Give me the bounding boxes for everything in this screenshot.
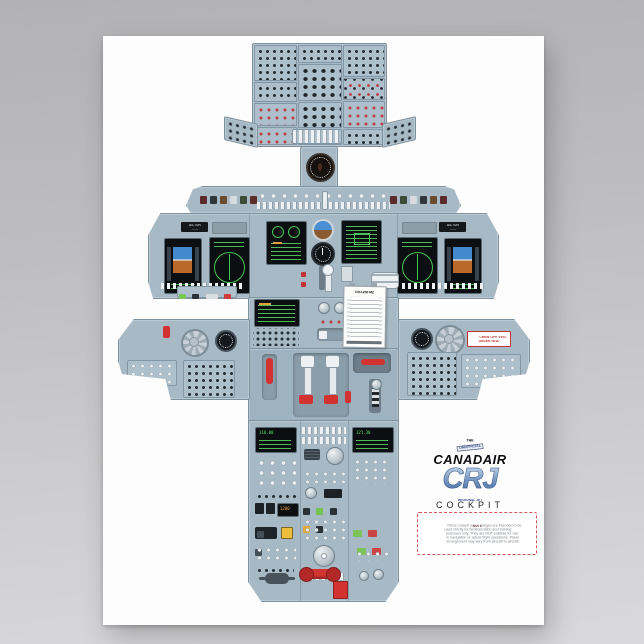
- green-lamp: [353, 530, 362, 537]
- data-placard-right: [402, 222, 437, 234]
- fms-cdu-screen: [254, 299, 300, 327]
- brand-model-sub: REGIONAL JET: [458, 499, 482, 502]
- lamp: [230, 196, 237, 204]
- brand-model: CRJ: [421, 466, 519, 492]
- overhead-subpanel: [298, 64, 342, 100]
- overhead-subpanel: [298, 102, 342, 128]
- toggle-row: [254, 565, 294, 573]
- dark-lamp: [330, 508, 337, 515]
- flap-lever: [361, 359, 385, 365]
- note-line: arrangement may vary from aircraft to ai…: [446, 540, 519, 544]
- guarded-switch: [301, 272, 306, 277]
- altimeter-needle: [322, 248, 323, 255]
- note-body: These cockpit panel images are intended …: [422, 522, 532, 542]
- indicator-window: [257, 531, 264, 538]
- thrust-lever-shaft: [304, 365, 312, 395]
- overhead-subpanel: [343, 129, 385, 145]
- cdu-text-rows: [258, 303, 295, 322]
- right-bezel-button-strip: [402, 283, 486, 289]
- source-select-knob-cluster: [302, 517, 346, 541]
- warning-lamp: [440, 196, 447, 204]
- standby-altimeter: [311, 242, 335, 266]
- first-officer-clock: [411, 328, 433, 350]
- transponder-display: 1200: [277, 503, 299, 517]
- panel-seam: [348, 421, 349, 601]
- com1-frequency: 118.00: [259, 431, 273, 435]
- reversion-lamp-panel: [177, 286, 237, 298]
- speed-tape: [447, 247, 451, 281]
- aircraft-id-text: A/C S/N: [447, 224, 459, 227]
- alt-tape: [475, 247, 479, 281]
- clock-face: [219, 334, 233, 348]
- checklist-card: CRJ-200 M2: [342, 286, 386, 349]
- guarded-red-switch: [163, 326, 170, 338]
- wiper-switch-recess: [317, 328, 345, 341]
- radio-tuning-display-left: 118.00: [255, 427, 297, 453]
- clock-face: [415, 332, 429, 346]
- lighting-knob: [373, 569, 384, 580]
- audio-knob-row: [302, 469, 346, 483]
- heading-line: [229, 254, 230, 280]
- small-knob-row: [354, 549, 390, 561]
- checklist-lines: [347, 297, 383, 338]
- flap-indicator-gauge: [341, 266, 353, 282]
- volume-knob-large: [326, 447, 344, 465]
- trim-wheel-center: [321, 553, 327, 559]
- white-button: [319, 331, 327, 339]
- green-lamp: [179, 294, 186, 299]
- red-guard-switch: [345, 391, 351, 403]
- amber-readout: [273, 242, 282, 244]
- aft-pedestal: 118.00 1200: [248, 420, 399, 602]
- com2-frequency: 121.30: [356, 431, 370, 435]
- aircraft-id-text: A/C S/N: [189, 224, 201, 227]
- dark-lamp: [192, 294, 199, 299]
- checklist-title: CRJ-200 M2: [356, 291, 375, 295]
- cdu-title-row: [259, 303, 271, 305]
- lamp: [420, 196, 427, 204]
- transponder-code: 1200: [280, 507, 290, 511]
- note-box: NOTE These cockpit panel images are inte…: [417, 512, 537, 555]
- throttle-quadrant: [248, 348, 399, 422]
- thrust-lever-grip: [325, 355, 340, 368]
- lamp: [410, 196, 417, 204]
- radio-rows: [356, 437, 388, 449]
- overhead-subpanel: [254, 103, 297, 126]
- thrust-lever-grip: [300, 355, 315, 368]
- speaker-grille: [304, 449, 320, 460]
- status-lamp: [400, 196, 407, 204]
- glareshield-panel: [186, 186, 461, 214]
- reverser-lever: [299, 395, 313, 404]
- life-vest-text: CREW LIFE VEST: [479, 336, 507, 339]
- main-instrument-panel: A/C S/N —— A/C S/N ——: [148, 213, 499, 299]
- radio-rows: [259, 437, 291, 449]
- nd-heading-row: [402, 241, 432, 247]
- atc-key: [255, 503, 264, 514]
- label-strip: [206, 294, 218, 299]
- overhead-right-wing: [382, 116, 416, 148]
- lighting-control-panel: [127, 360, 177, 386]
- selector-knob: [305, 487, 317, 499]
- overhead-subpanel: [254, 82, 297, 102]
- reverser-lever: [324, 395, 338, 404]
- warning-lamp: [200, 196, 207, 204]
- alt-tape: [195, 247, 199, 281]
- heading-line: [417, 254, 418, 280]
- poster: A/C S/N —— A/C S/N ——: [103, 36, 544, 625]
- brand-the: THE: [466, 439, 473, 443]
- rudder-trim-aircraft-symbol: [265, 573, 289, 584]
- atc-key: [266, 503, 275, 514]
- status-lamp: [240, 196, 247, 204]
- life-vest-placard: CREW LIFE VEST UNDER SEAT: [467, 331, 511, 347]
- standby-compass-pod: [300, 146, 338, 188]
- eicas-primary-display: [266, 221, 307, 265]
- radio-knob-grid: [352, 457, 392, 485]
- speedbrake-lever: [266, 358, 273, 384]
- compass-center: [318, 163, 322, 171]
- door-status-lamps: [352, 525, 394, 539]
- aircraft-id-placard-left: A/C S/N ——: [181, 222, 208, 232]
- guarded-switch: [301, 282, 306, 287]
- standby-attitude-indicator: [312, 219, 334, 241]
- speed-tape: [167, 247, 171, 281]
- dark-double-key: [324, 489, 342, 498]
- overhead-subpanel: [254, 45, 297, 81]
- overhead-audio-strip: [292, 129, 342, 144]
- engine-dial: [272, 226, 284, 238]
- knob-cap: [444, 334, 454, 344]
- pitch-wheel: [322, 191, 328, 210]
- fire-extinguisher-handle: [333, 581, 348, 599]
- trim-knob-row: [254, 545, 296, 561]
- engine-dial: [288, 226, 300, 238]
- thrust-lever-shaft: [329, 365, 337, 395]
- trim-switch-panel: [183, 360, 235, 398]
- overhead-subpanel: [343, 45, 385, 77]
- knob-panel: [461, 354, 521, 388]
- altimeter-scale: [315, 246, 331, 262]
- caution-lamp: [430, 196, 437, 204]
- lighting-knob: [359, 571, 369, 581]
- amber-button: [281, 527, 293, 539]
- overhead-subpanel: [343, 78, 385, 100]
- parking-brake-disc: [299, 567, 314, 582]
- system-synoptic-box: [354, 233, 370, 245]
- dark-lamp: [303, 508, 310, 515]
- captain-clock: [215, 330, 237, 352]
- red-lamp: [224, 294, 231, 299]
- aircraft-id-placard-right: A/C S/N ——: [439, 222, 466, 232]
- eicas-system-display: [341, 220, 382, 264]
- status-lamp-row: [302, 503, 346, 513]
- overhead-right-column: [343, 45, 385, 145]
- attitude-indicator: [453, 247, 472, 273]
- checklist-footer: [347, 341, 382, 345]
- data-placard-left: [212, 222, 247, 234]
- attitude-indicator: [173, 247, 192, 273]
- display-control-knob: [318, 302, 330, 314]
- glareshield-right-annunciators: [389, 195, 448, 205]
- nd-heading-row: [214, 241, 244, 247]
- product-photo-background: A/C S/N —— A/C S/N ——: [0, 0, 644, 644]
- switch-row: [254, 491, 296, 499]
- audio-select-row: [302, 427, 346, 434]
- caution-lamp: [220, 196, 227, 204]
- audio-select-row: [302, 437, 346, 444]
- overhead-subpanel: [254, 127, 297, 145]
- lever-knob: [371, 379, 382, 390]
- life-vest-text2: UNDER SEAT: [478, 340, 499, 343]
- warning-lamp: [210, 196, 217, 204]
- right-side-console: CREW LIFE VEST UNDER SEAT: [398, 319, 530, 400]
- overhead-left-column: [254, 45, 297, 145]
- overhead-subpanel: [343, 101, 385, 128]
- red-lamp: [368, 530, 377, 537]
- glareshield-left-annunciators: [199, 195, 258, 205]
- green-lamp: [316, 508, 323, 515]
- switch-panel: [407, 352, 457, 396]
- standby-compass-icon: [306, 153, 335, 182]
- radio-knob-grid: [254, 457, 296, 487]
- radio-tuning-display-right: 121.30: [352, 427, 394, 453]
- fms-cdu-keypad: [253, 328, 299, 346]
- parking-brake-disc: [326, 567, 341, 582]
- overhead-subpanel: [298, 45, 342, 63]
- tiller-cap: [189, 337, 199, 347]
- brand-banner: UNOFFICIAL: [456, 443, 483, 451]
- striped-lever-handle: [372, 387, 379, 407]
- trim-indicator-windows: [255, 527, 277, 539]
- gear-lever-knob: [322, 264, 334, 276]
- left-side-console: [118, 319, 250, 400]
